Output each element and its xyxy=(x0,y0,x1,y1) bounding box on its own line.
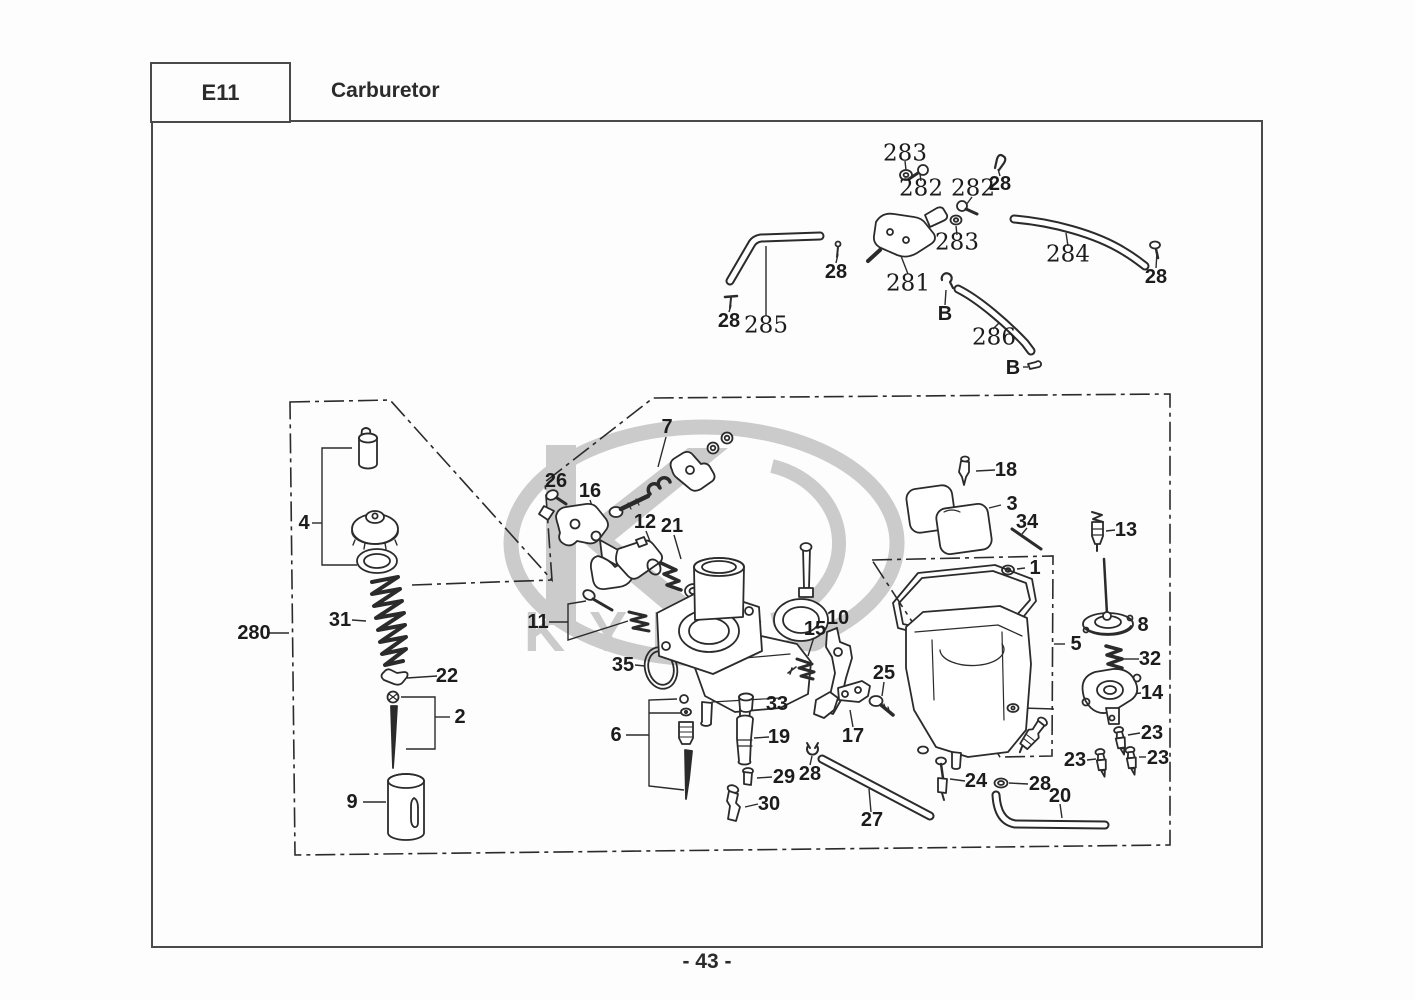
callout-6: 6 xyxy=(610,725,621,745)
callout-10: 10 xyxy=(827,608,849,628)
callout-282: 282 xyxy=(899,178,943,201)
callout-labels: 28328228228328281284282828528B286B280431… xyxy=(0,0,1415,1000)
callout-B: B xyxy=(938,304,952,324)
callout-34: 34 xyxy=(1016,512,1038,532)
callout-15: 15 xyxy=(804,619,826,639)
callout-33: 33 xyxy=(766,694,788,714)
callout-1: 1 xyxy=(1029,558,1040,578)
callout-18: 18 xyxy=(995,460,1017,480)
callout-11: 11 xyxy=(527,612,548,632)
callout-4: 4 xyxy=(298,513,309,533)
callout-23: 23 xyxy=(1147,748,1169,768)
callout-26: 26 xyxy=(545,471,567,491)
callout-12: 12 xyxy=(634,512,656,532)
callout-7: 7 xyxy=(661,417,672,437)
callout-285: 285 xyxy=(744,315,788,338)
page-title: Carburetor xyxy=(331,79,440,103)
callout-283: 283 xyxy=(935,232,979,255)
callout-14: 14 xyxy=(1141,683,1163,703)
callout-17: 17 xyxy=(842,726,864,746)
section-code: E11 xyxy=(202,80,240,106)
callout-28: 28 xyxy=(1145,267,1167,287)
callout-9: 9 xyxy=(346,792,357,812)
callout-23: 23 xyxy=(1141,723,1163,743)
callout-25: 25 xyxy=(873,663,895,683)
callout-16: 16 xyxy=(579,481,601,501)
callout-20: 20 xyxy=(1049,786,1071,806)
callout-23: 23 xyxy=(1064,750,1086,770)
callout-29: 29 xyxy=(773,767,795,787)
callout-281: 281 xyxy=(886,273,930,296)
catalog-page: KYMCO E11 Carburetor xyxy=(0,0,1415,1000)
callout-31: 31 xyxy=(329,610,351,630)
page-number: - 43 - xyxy=(151,950,1263,974)
callout-22: 22 xyxy=(436,666,458,686)
section-code-box: E11 xyxy=(150,62,291,123)
callout-28: 28 xyxy=(799,764,821,784)
callout-B: B xyxy=(1006,358,1020,378)
callout-28: 28 xyxy=(718,311,740,331)
callout-28: 28 xyxy=(989,174,1011,194)
callout-30: 30 xyxy=(758,794,780,814)
callout-283: 283 xyxy=(883,143,927,166)
callout-13: 13 xyxy=(1115,520,1137,540)
callout-32: 32 xyxy=(1139,649,1161,669)
callout-286: 286 xyxy=(972,327,1016,350)
callout-24: 24 xyxy=(965,771,987,791)
callout-8: 8 xyxy=(1137,615,1148,635)
callout-280: 280 xyxy=(237,623,270,643)
callout-27: 27 xyxy=(861,810,883,830)
callout-284: 284 xyxy=(1046,244,1090,267)
callout-5: 5 xyxy=(1070,634,1081,654)
callout-19: 19 xyxy=(768,727,790,747)
callout-21: 21 xyxy=(661,516,683,536)
callout-28: 28 xyxy=(825,262,847,282)
callout-35: 35 xyxy=(612,655,634,675)
callout-2: 2 xyxy=(454,707,465,727)
callout-28: 28 xyxy=(1029,774,1051,794)
